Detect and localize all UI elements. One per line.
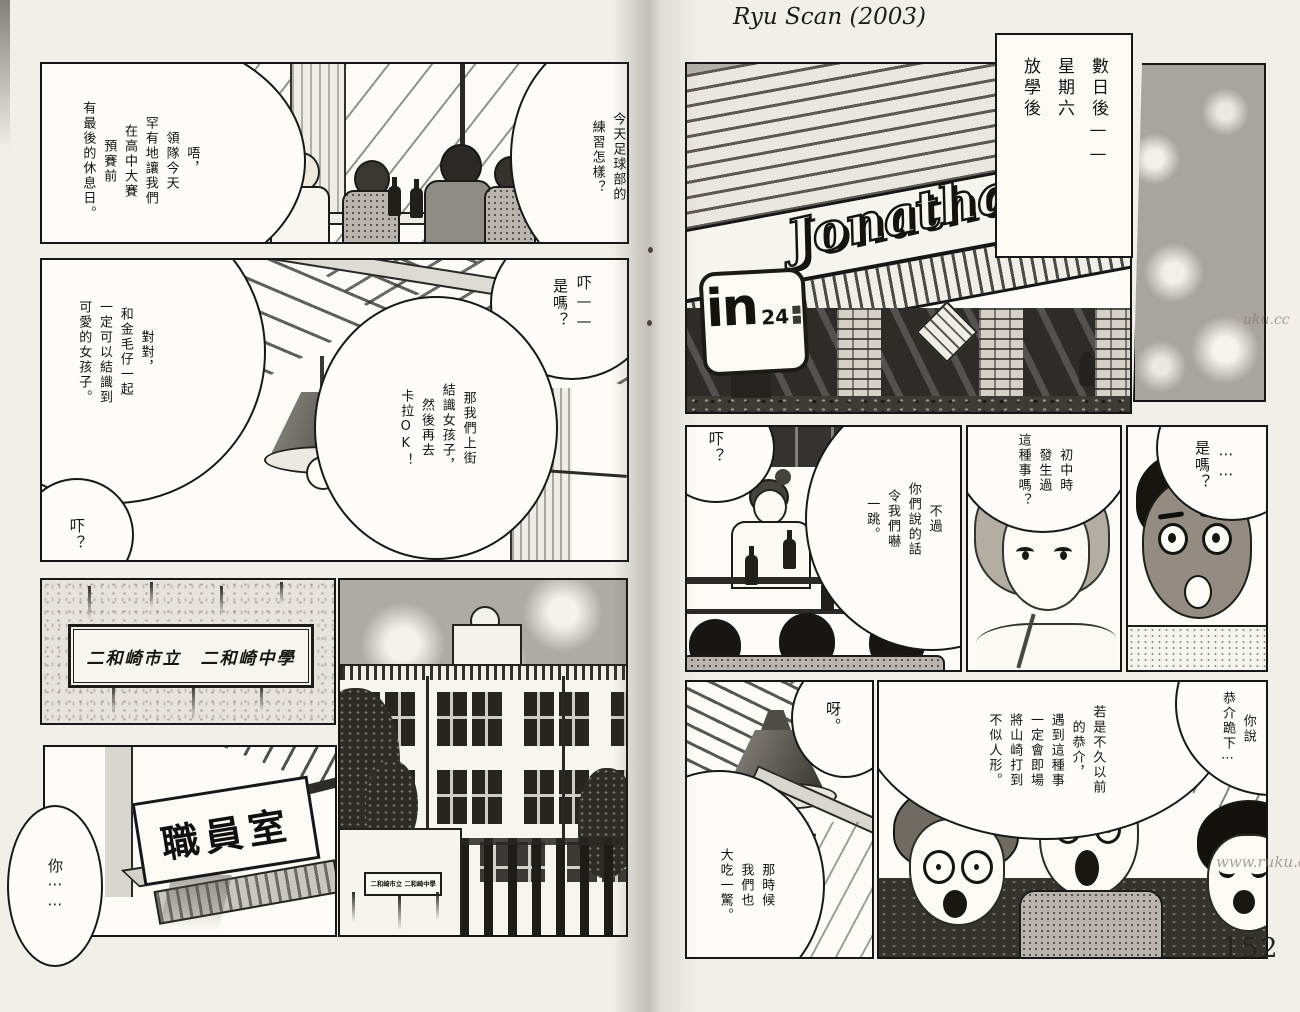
table-bottle — [388, 186, 401, 216]
scan-edge-smudge — [0, 0, 10, 150]
window — [472, 692, 502, 746]
sign-24-text: 24 — [761, 304, 790, 329]
hedge-bushes — [687, 396, 1130, 414]
center-boy-jacket — [1019, 890, 1163, 959]
right-boy-mouth — [1233, 890, 1255, 914]
caption-text: 數日後—— 星期六 放學後 — [1013, 57, 1115, 256]
window-group — [437, 770, 502, 824]
brick-pillar — [1095, 308, 1130, 404]
bubble-text: 你⋯⋯ — [43, 858, 67, 915]
clouds — [1135, 65, 1264, 400]
window — [437, 692, 467, 746]
panel-ceiling-lamp: 吓—— 是嗎？ 那我們上街 結識女孩子， 然後再去 卡拉OK！ 對對， 和金毛仔… — [40, 258, 629, 562]
window-group — [437, 692, 502, 746]
girl-pupil — [1060, 551, 1067, 560]
school-name-plaque: 二和崎市立 二和崎中學 — [68, 624, 314, 688]
manga-double-page-scan: Ryu Scan (2003) 那麼， 今天足球部的 練習怎樣？ 唔， 領隊今天… — [0, 0, 1300, 1012]
speech-bubble-plan: 那我們上街 結識女孩子， 然後再去 卡拉OK！ — [314, 296, 558, 560]
sign-small-characters — [793, 306, 802, 324]
panel-diner-interior: 那麼， 今天足球部的 練習怎樣？ 唔， 領隊今天 罕有地讓我們 在高中大賽 預賽… — [40, 62, 629, 244]
panel-three-boys: 若是不久以前 的恭介， 遇到這種事 一定會即場 將山崎打到 不似人形。 你說 恭… — [877, 680, 1268, 959]
window — [437, 770, 467, 824]
speech-bubble-answer: 唔， 領隊今天 罕有地讓我們 在高中大賽 預賽前 有最後的休息日。 — [40, 62, 306, 244]
boy-shirt — [1128, 625, 1266, 672]
speech-bubble-you: 你⋯⋯ — [7, 805, 103, 967]
narration-caption-box: 數日後—— 星期六 放學後 — [995, 33, 1133, 258]
bubble-text: 吓—— 是嗎？ — [548, 275, 596, 332]
panel-counter-interior: 吓？ 不過 你們說的話 令我們嚇 一跳。 — [685, 425, 962, 672]
bubble-text: 不過 你們說的話 令我們嚇 一跳。 — [860, 482, 943, 557]
boy-eye — [1158, 523, 1188, 555]
panel-girl-drinking: 初中時 發生過 這種事嗎？ — [966, 425, 1122, 672]
ink-drip — [88, 586, 91, 620]
left-boy-eye — [923, 850, 955, 884]
bubble-text: 若是不久以前 的恭介， 遇到這種事 一定會即場 將山崎打到 不似人形。 — [983, 705, 1108, 795]
waitress-face — [753, 489, 787, 525]
speech-bubble-question: 那麼， 今天足球部的 練習怎樣？ — [510, 62, 629, 244]
waitress-bun — [775, 469, 791, 485]
sign-shadow — [158, 875, 232, 930]
scan-credit: Ryu Scan (2003) — [733, 4, 926, 30]
ink-drip — [352, 892, 355, 922]
bubble-text: 那我們上街 結識女孩子， 然後再去 卡拉OK！ — [394, 383, 477, 473]
brick-pillar — [979, 308, 1023, 404]
pedestrian-silhouette — [1079, 352, 1095, 386]
window — [611, 692, 628, 746]
girl-pupil — [1022, 551, 1029, 560]
center-boy-mouth — [1075, 850, 1099, 886]
staffroom-sign-text: 職員室 — [156, 794, 295, 869]
left-boy-eye — [961, 850, 993, 884]
bubble-text: 吓？ — [65, 518, 89, 552]
panel-staffroom-sign: 職員室 你⋯⋯ — [43, 745, 337, 937]
bubble-text: 對對， 和金毛仔一起 一定可以結識到 可愛的女孩子。 — [72, 300, 155, 405]
panel-surprised-boy: ⋯⋯ 是嗎？ — [1126, 425, 1268, 672]
ink-drip — [260, 684, 263, 712]
panel-lamp-window: 呀。 那時候 我們也 大吃一驚。 — [685, 680, 874, 959]
wall-name-plate-text: 二和崎市立 二和崎中學 — [370, 880, 435, 889]
sign-in-text: in — [705, 284, 758, 333]
ink-drip — [220, 586, 223, 616]
school-plaque-text: 二和崎市立 二和崎中學 — [87, 644, 296, 669]
flag-pole — [562, 676, 565, 856]
ink-drip — [112, 684, 115, 714]
panel-sky — [1133, 63, 1266, 402]
ink-drip — [192, 684, 195, 720]
boy-eye — [1202, 523, 1232, 555]
counter-bottle — [745, 555, 758, 585]
bubble-text: 你說 恭介跪下⋯ — [1216, 691, 1258, 768]
left-boy-mouth — [943, 890, 967, 918]
bubble-text: ⋯⋯ 是嗎？ — [1190, 440, 1238, 491]
window — [524, 692, 554, 746]
binding-dot — [647, 320, 652, 326]
bubble-text: 吓？ — [704, 431, 728, 465]
bubble-text: 呀。 — [821, 701, 845, 735]
panel-school-building: 二和崎市立 二和崎中學 — [338, 578, 628, 937]
foreground-shoulders — [685, 655, 945, 672]
window-group — [524, 692, 589, 746]
ink-drip — [436, 892, 439, 920]
held-bottle — [783, 539, 796, 569]
page-number: 152 — [1222, 933, 1280, 964]
bubble-text: 初中時 發生過 這種事嗎？ — [1012, 433, 1074, 508]
brick-pillar — [837, 308, 881, 404]
window — [472, 770, 502, 824]
table-bottle — [410, 188, 423, 218]
binding-dot — [648, 247, 653, 253]
front-wall: 二和崎市立 二和崎中學 — [340, 828, 462, 937]
window-group — [611, 692, 628, 746]
school-gate — [460, 838, 626, 935]
wall-name-plate: 二和崎市立 二和崎中學 — [364, 872, 442, 896]
girl-shoulder — [976, 623, 1116, 672]
bubble-text: 那麼， 今天足球部的 練習怎樣？ — [586, 112, 629, 202]
ink-drip — [150, 582, 153, 608]
speech-bubble-surprised: 不過 你們說的話 令我們嚇 一跳。 — [805, 425, 962, 651]
bubble-text: 唔， 領隊今天 罕有地讓我們 在高中大賽 預賽前 有最後的休息日。 — [77, 101, 202, 221]
bubble-text: 那時候 我們也 大吃一驚。 — [714, 848, 776, 923]
window — [524, 770, 554, 824]
panel-school-plaque: 二和崎市立 二和崎中學 — [40, 578, 336, 725]
boy-mouth — [1184, 575, 1212, 609]
open-24h-sign: in 24 — [698, 267, 809, 376]
ink-drip — [398, 896, 401, 930]
ink-drip — [280, 582, 283, 604]
diner-backview-boy-body — [424, 180, 492, 244]
